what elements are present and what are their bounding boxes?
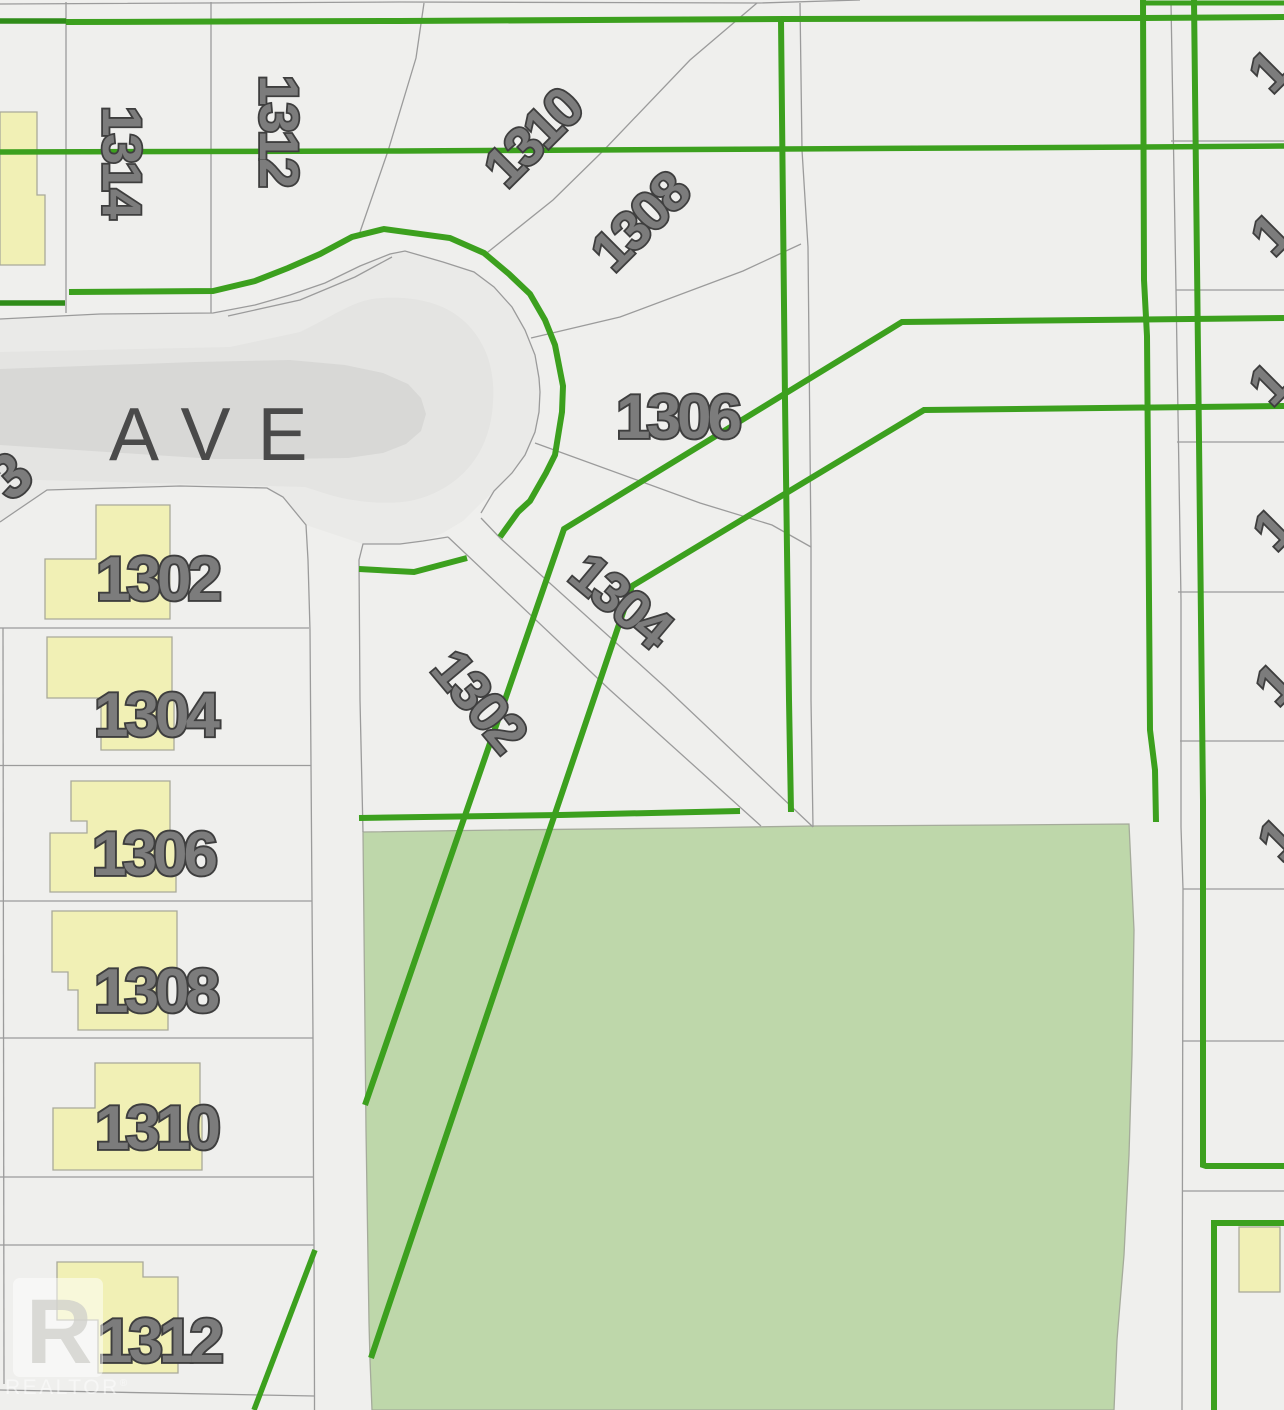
svg-text:1306: 1306: [616, 383, 740, 452]
svg-text:1302: 1302: [96, 545, 219, 614]
svg-text:R: R: [26, 1281, 92, 1383]
svg-text:1312: 1312: [248, 75, 310, 187]
svg-text:1312: 1312: [98, 1307, 221, 1376]
svg-text:1304: 1304: [94, 681, 220, 750]
svg-text:1306: 1306: [92, 820, 216, 889]
svg-text:1314: 1314: [91, 106, 153, 220]
svg-text:REALTOR®: REALTOR®: [5, 1376, 130, 1399]
svg-text:1310: 1310: [95, 1094, 218, 1163]
svg-text:1308: 1308: [94, 957, 218, 1026]
svg-text:AVE: AVE: [109, 392, 335, 476]
